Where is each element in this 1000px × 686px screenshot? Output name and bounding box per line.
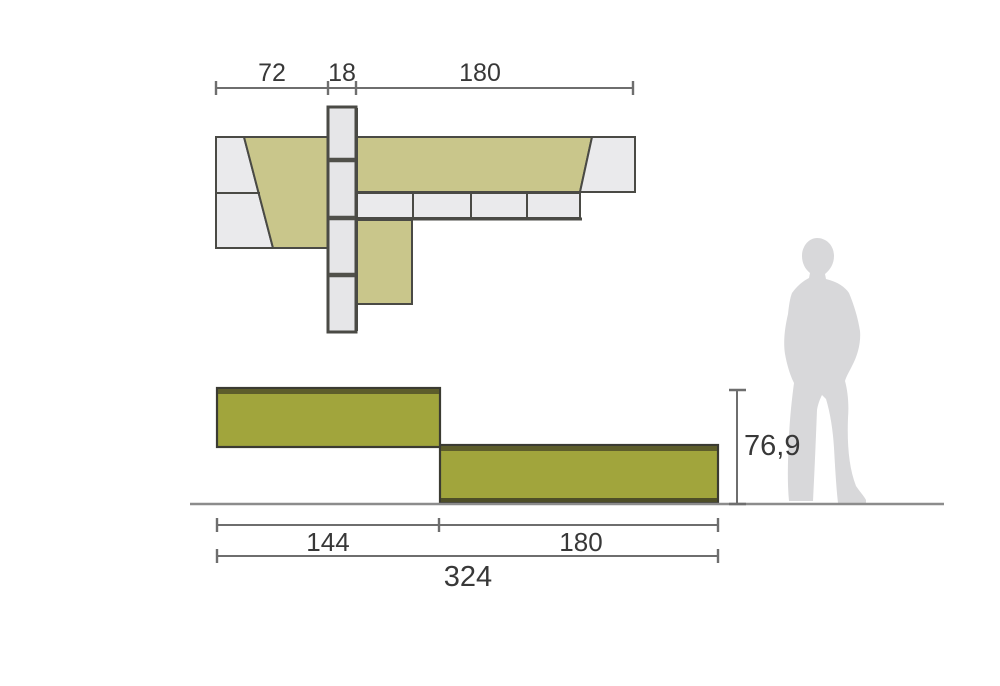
- left-unit-body: [217, 388, 440, 447]
- plan-lower-cabinet-top: [357, 220, 412, 304]
- plan-right-top-surface: [356, 137, 592, 192]
- plan-flap-door: [527, 193, 580, 218]
- technical-drawing-canvas: 72 18 180: [0, 0, 1000, 686]
- plan-vertical-spine: [328, 107, 357, 332]
- plan-flap-door: [413, 193, 471, 218]
- top-dim-label-right: 180: [459, 59, 501, 87]
- plan-flap-door: [357, 193, 413, 218]
- width-dim-label-left: 144: [306, 527, 349, 557]
- elevation-right-unit: [440, 445, 718, 503]
- plan-flap-door-row: [356, 193, 582, 219]
- left-unit-top-edge: [218, 389, 439, 394]
- right-unit-top-edge: [441, 446, 717, 451]
- plan-flap-door: [471, 193, 527, 218]
- elevation-left-unit: [217, 388, 440, 447]
- top-dim-label-left: 72: [258, 59, 286, 87]
- total-width-dim-label: 324: [444, 561, 492, 593]
- width-dim-label-right: 180: [559, 527, 602, 557]
- height-dim-label: 76,9: [744, 430, 800, 462]
- right-unit-plinth: [441, 498, 717, 502]
- top-dim-label-center: 18: [328, 59, 356, 87]
- right-unit-body: [440, 445, 718, 503]
- furniture-dimension-diagram: 72 18 180: [0, 0, 1000, 686]
